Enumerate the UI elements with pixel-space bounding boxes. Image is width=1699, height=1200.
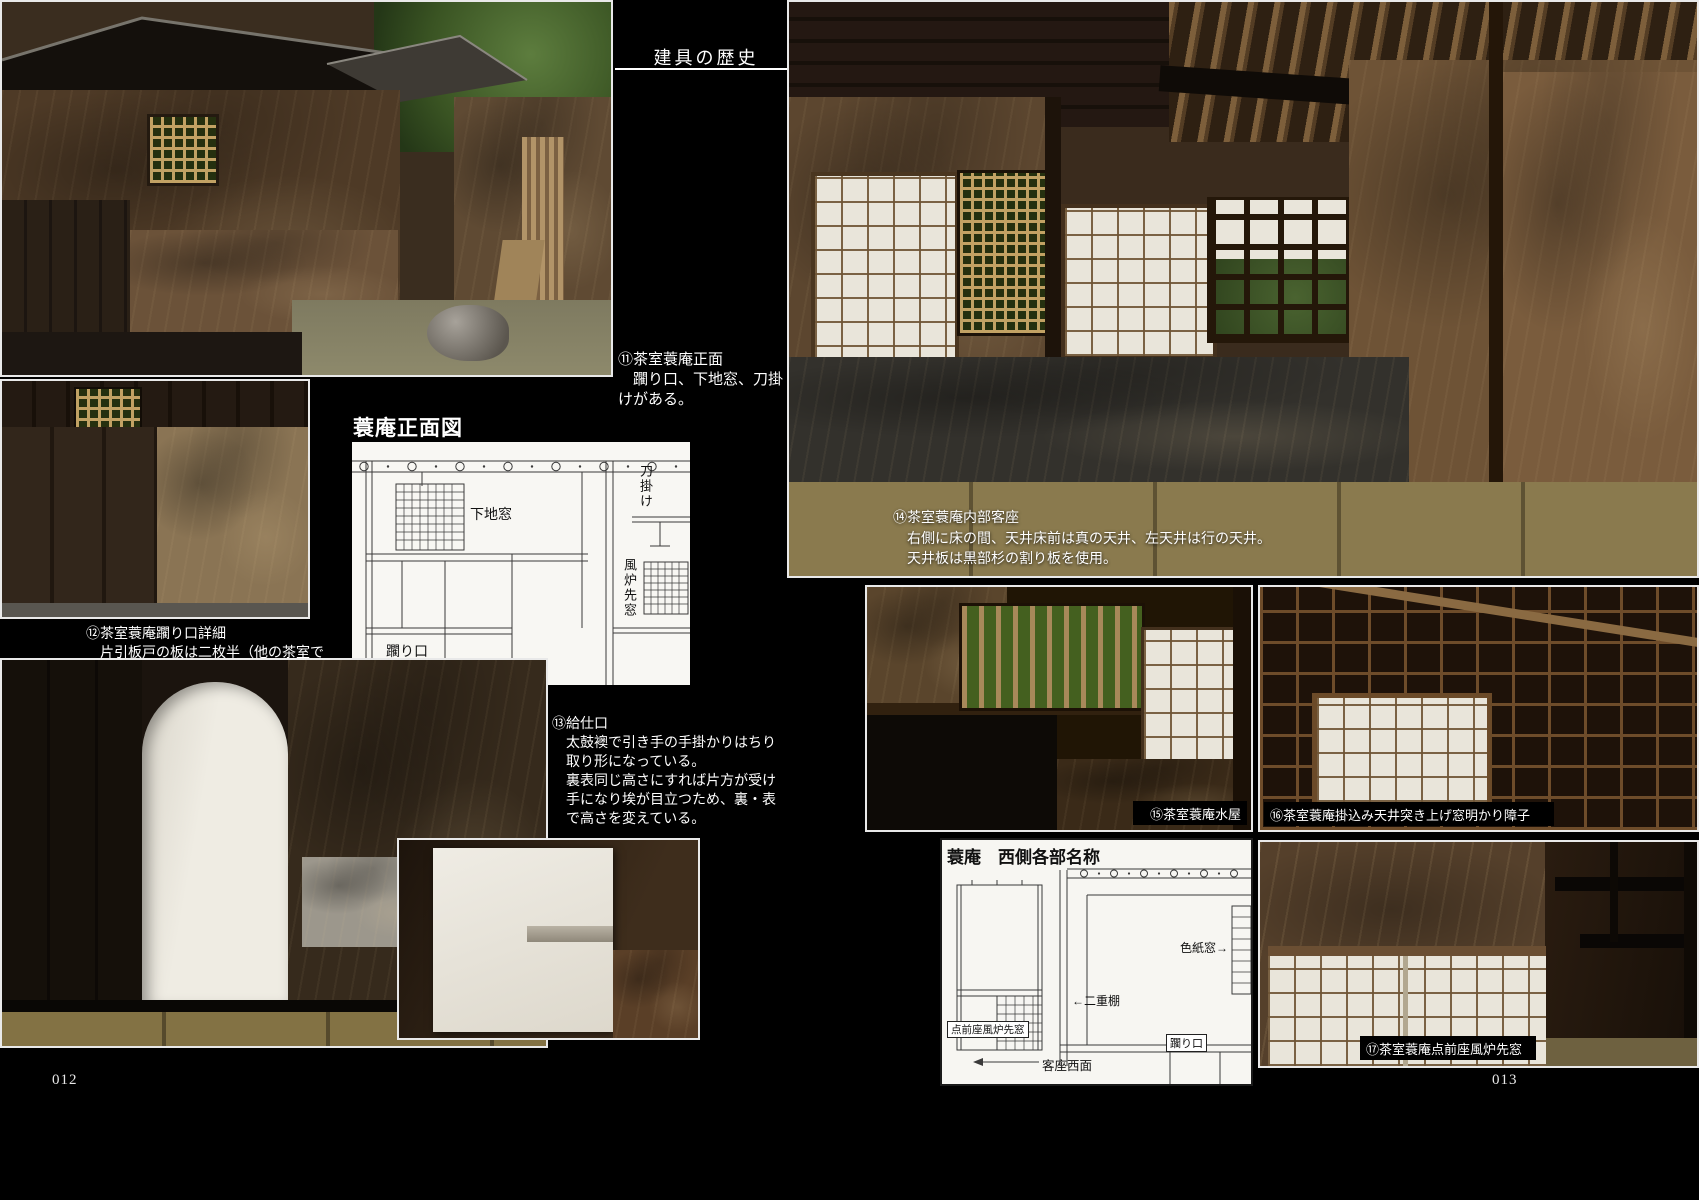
photo-label-bar-15: ⑮茶室蓑庵水屋 [1133, 801, 1247, 825]
lattice-window-center [957, 170, 1051, 336]
furosaki-dark-corner [1545, 842, 1697, 1066]
book-spread: 建具の歴史 ⑪茶室蓑庵正面 躙り口、下地窓、刀掛 けがある。 ⑫茶室蓑庵躙り口詳… [0, 0, 1699, 1200]
caption-line: 手になり埃が目立つため、裏・表 [552, 790, 752, 809]
hanging-shelf-upper [1555, 877, 1687, 891]
photo-ceiling-window: ⑯茶室蓑庵掛込み天井突き上げ窓明かり障子 [1258, 585, 1699, 832]
inset-wall-right [613, 950, 700, 1040]
section-header: 建具の歴史 [615, 0, 797, 70]
stone-sill [2, 603, 308, 617]
caption-line: 裏表同じ高さにすれば片方が受け [552, 771, 752, 790]
caption-11: ⑪茶室蓑庵正面 躙り口、下地窓、刀掛 けがある。 [618, 350, 798, 410]
caption-line: ⑬給仕口 [552, 714, 752, 733]
photo-nijiriguchi-detail [0, 379, 310, 619]
header-rule [615, 68, 796, 70]
front-elevation-title: 蓑庵正面図 [353, 412, 463, 442]
page-number-right: 013 [1492, 1072, 1518, 1089]
label-shitajimado: 下地窓 [470, 504, 512, 524]
caption-line: ⑭茶室蓑庵内部客座 [893, 507, 1323, 528]
shoji-window-middle [1061, 204, 1217, 360]
caption-line: 取り形になっている。 [552, 752, 752, 771]
page-number-left: 012 [52, 1072, 78, 1089]
caption-line: 右側に床の間、天井床前は真の天井、左天井は行の天井。 [893, 528, 1323, 549]
shoji-window-left [811, 172, 959, 375]
caption-line: 太鼓襖で引き手の手掛かりはちり [552, 733, 752, 752]
photo-label-bar-16: ⑯茶室蓑庵掛込み天井突き上げ窓明かり障子 [1264, 802, 1554, 826]
label-katanakake: 刀掛け [636, 464, 655, 509]
caption-line: ⑪茶室蓑庵正面 [618, 350, 798, 370]
label-nijudana: ←二重棚 [1072, 992, 1120, 1009]
photo-mizuya: ⑮茶室蓑庵水屋 [865, 585, 1253, 832]
tsukiage-shoji-panel [1312, 693, 1492, 807]
window-with-garden-view [1207, 197, 1355, 343]
photo-label-text: ⑮茶室蓑庵水屋 [1150, 804, 1241, 823]
photo-tearoom-interior-main: ⑭茶室蓑庵内部客座 右側に床の間、天井床前は真の天井、左天井は行の天井。 天井板… [787, 0, 1699, 578]
photo-teahouse-exterior [0, 0, 613, 377]
section-title: 建具の歴史 [615, 44, 797, 70]
label-nijiriguchi-west: 躙り口 [1166, 1034, 1207, 1052]
exterior-door-dark [2, 200, 130, 342]
exterior-lattice-window [147, 114, 219, 186]
label-furosakimado: 風炉先窓 [620, 558, 639, 618]
ground-shadow [2, 332, 302, 377]
bamboo-pole-diagonal [1258, 585, 1699, 653]
label-shikishimado: 色紙窓→ [1180, 939, 1228, 956]
photo-furosaki: ⑰茶室蓑庵点前座風炉先窓 [1258, 840, 1699, 1068]
dark-door-panel [2, 660, 142, 1005]
photo-serving-door-inset [397, 838, 700, 1040]
photo-label-text: ⑰茶室蓑庵点前座風炉先窓 [1366, 1039, 1522, 1058]
caption-line: で高さを変えている。 [552, 809, 752, 828]
caption-line: 躙り口、下地窓、刀掛 [618, 370, 798, 390]
photo-label-bar-17: ⑰茶室蓑庵点前座風炉先窓 [1360, 1036, 1536, 1060]
caption-line: ⑫茶室蓑庵躙り口詳細 [86, 624, 336, 643]
door-handle-notch [527, 926, 613, 942]
garden-rock [427, 305, 509, 361]
photo-label-text: ⑯茶室蓑庵掛込み天井突き上げ窓明かり障子 [1270, 805, 1530, 824]
caption-14: ⑭茶室蓑庵内部客座 右側に床の間、天井床前は真の天井、左天井は行の天井。 天井板… [893, 507, 1323, 569]
furosaki-shoji-frame [1268, 946, 1546, 956]
hanging-shelf-lower [1580, 934, 1697, 948]
far-right-wall [1503, 72, 1697, 484]
sliding-door-planks [2, 427, 157, 605]
beam-top [2, 381, 308, 427]
tatami-corner [1546, 1038, 1697, 1066]
mizuya-lattice-window [959, 603, 1145, 711]
label-temaeza-furosakimado: 点前座風炉先窓 [947, 1021, 1029, 1038]
mizuya-dark-lower [867, 715, 1057, 830]
west-elevation-diagram: 蓑庵 西側各部名称 [940, 838, 1253, 1086]
plaster-wall-tan [157, 427, 308, 605]
charcoal-lower-wall [789, 357, 1409, 485]
caption-line: 天井板は黒部杉の割り板を使用。 [893, 548, 1323, 569]
label-kyakuza-seimen: 客座西面 [1042, 1055, 1092, 1074]
arched-opening [142, 682, 288, 1005]
front-elevation-diagram: 下地窓 刀掛け 風炉先窓 躙り口 [352, 442, 690, 685]
mizuya-right-post [1233, 587, 1251, 830]
caption-13: ⑬給仕口 太鼓襖で引き手の手掛かりはちり 取り形になっている。 裏表同じ高さにす… [552, 714, 752, 828]
furosaki-corner-post [1684, 842, 1697, 1066]
shelf-hanger-rod [1610, 842, 1618, 942]
caption-line: けがある。 [618, 390, 798, 410]
